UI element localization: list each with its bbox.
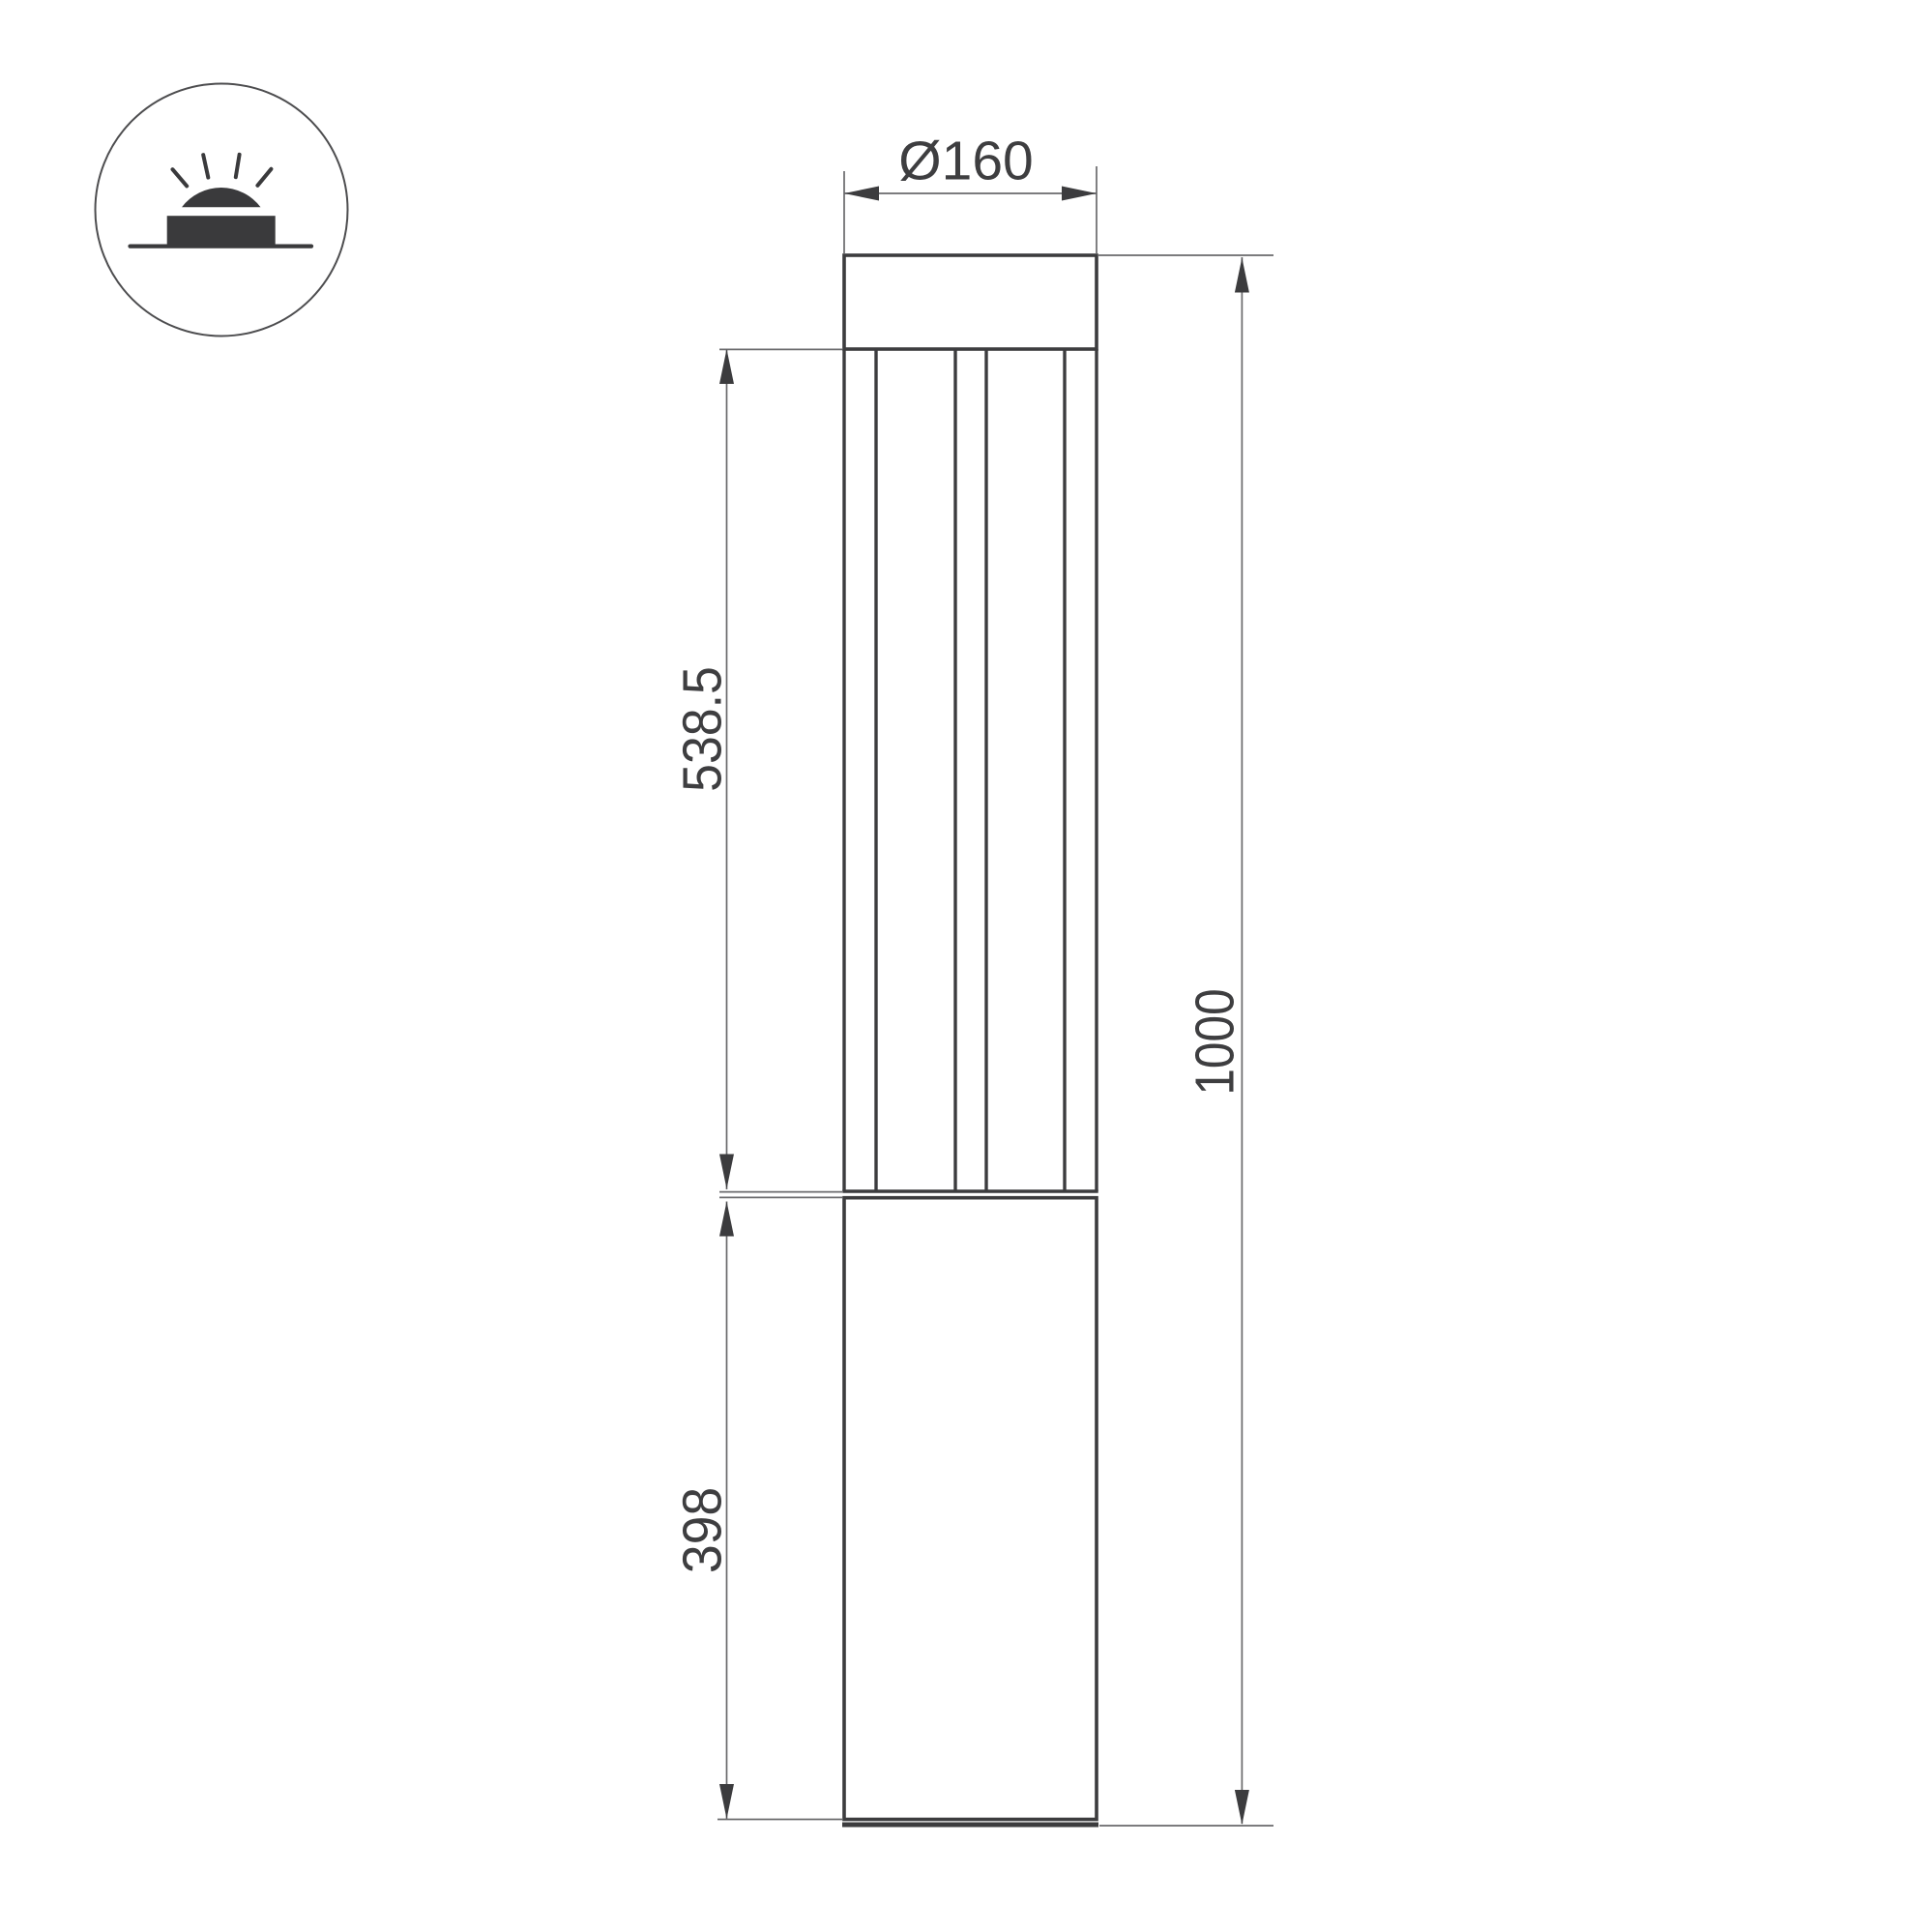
svg-text:Ø160: Ø160 (898, 131, 1033, 192)
svg-text:538.5: 538.5 (671, 666, 733, 792)
svg-text:398: 398 (671, 1487, 733, 1573)
svg-text:1000: 1000 (1185, 988, 1245, 1095)
